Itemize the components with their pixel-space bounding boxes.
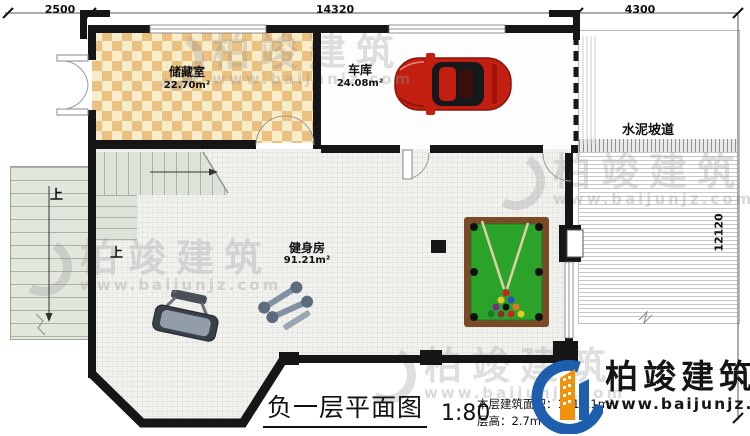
dim-right-side: 12120	[713, 203, 726, 263]
drawing-title: 负一层平面图	[263, 388, 427, 428]
drawing-title-block: 负一层平面图 1:80	[263, 388, 490, 428]
cement-ramp-label: 水泥坡道	[622, 119, 674, 138]
stair-up-label-indoor: 上	[110, 242, 123, 261]
dim-top-left: 2500	[30, 3, 90, 16]
brand-logo-icon	[527, 360, 603, 434]
gym-area: 91.21m²	[272, 255, 342, 266]
gym-label: 健身房	[272, 242, 342, 255]
storage-room-area: 22.70m²	[150, 80, 224, 91]
floor-plan-canvas: 柏竣建筑 www.baijunjz.com 柏竣建筑 www.baijunjz.…	[0, 0, 750, 436]
dim-top-middle: 14320	[300, 3, 370, 16]
brand-name: 柏竣建筑	[605, 360, 750, 395]
storage-room-label: 储藏室	[150, 66, 224, 79]
dim-top-right: 4300	[608, 3, 672, 16]
brand-logo: 柏竣建筑 www.baijunjz.com	[527, 360, 750, 434]
garage-area: 24.08m²	[330, 78, 390, 89]
garage-label: 车库	[330, 64, 390, 77]
brand-url: www.baijunjz.com	[605, 395, 750, 413]
stair-up-label-outdoor: 上	[50, 184, 63, 203]
